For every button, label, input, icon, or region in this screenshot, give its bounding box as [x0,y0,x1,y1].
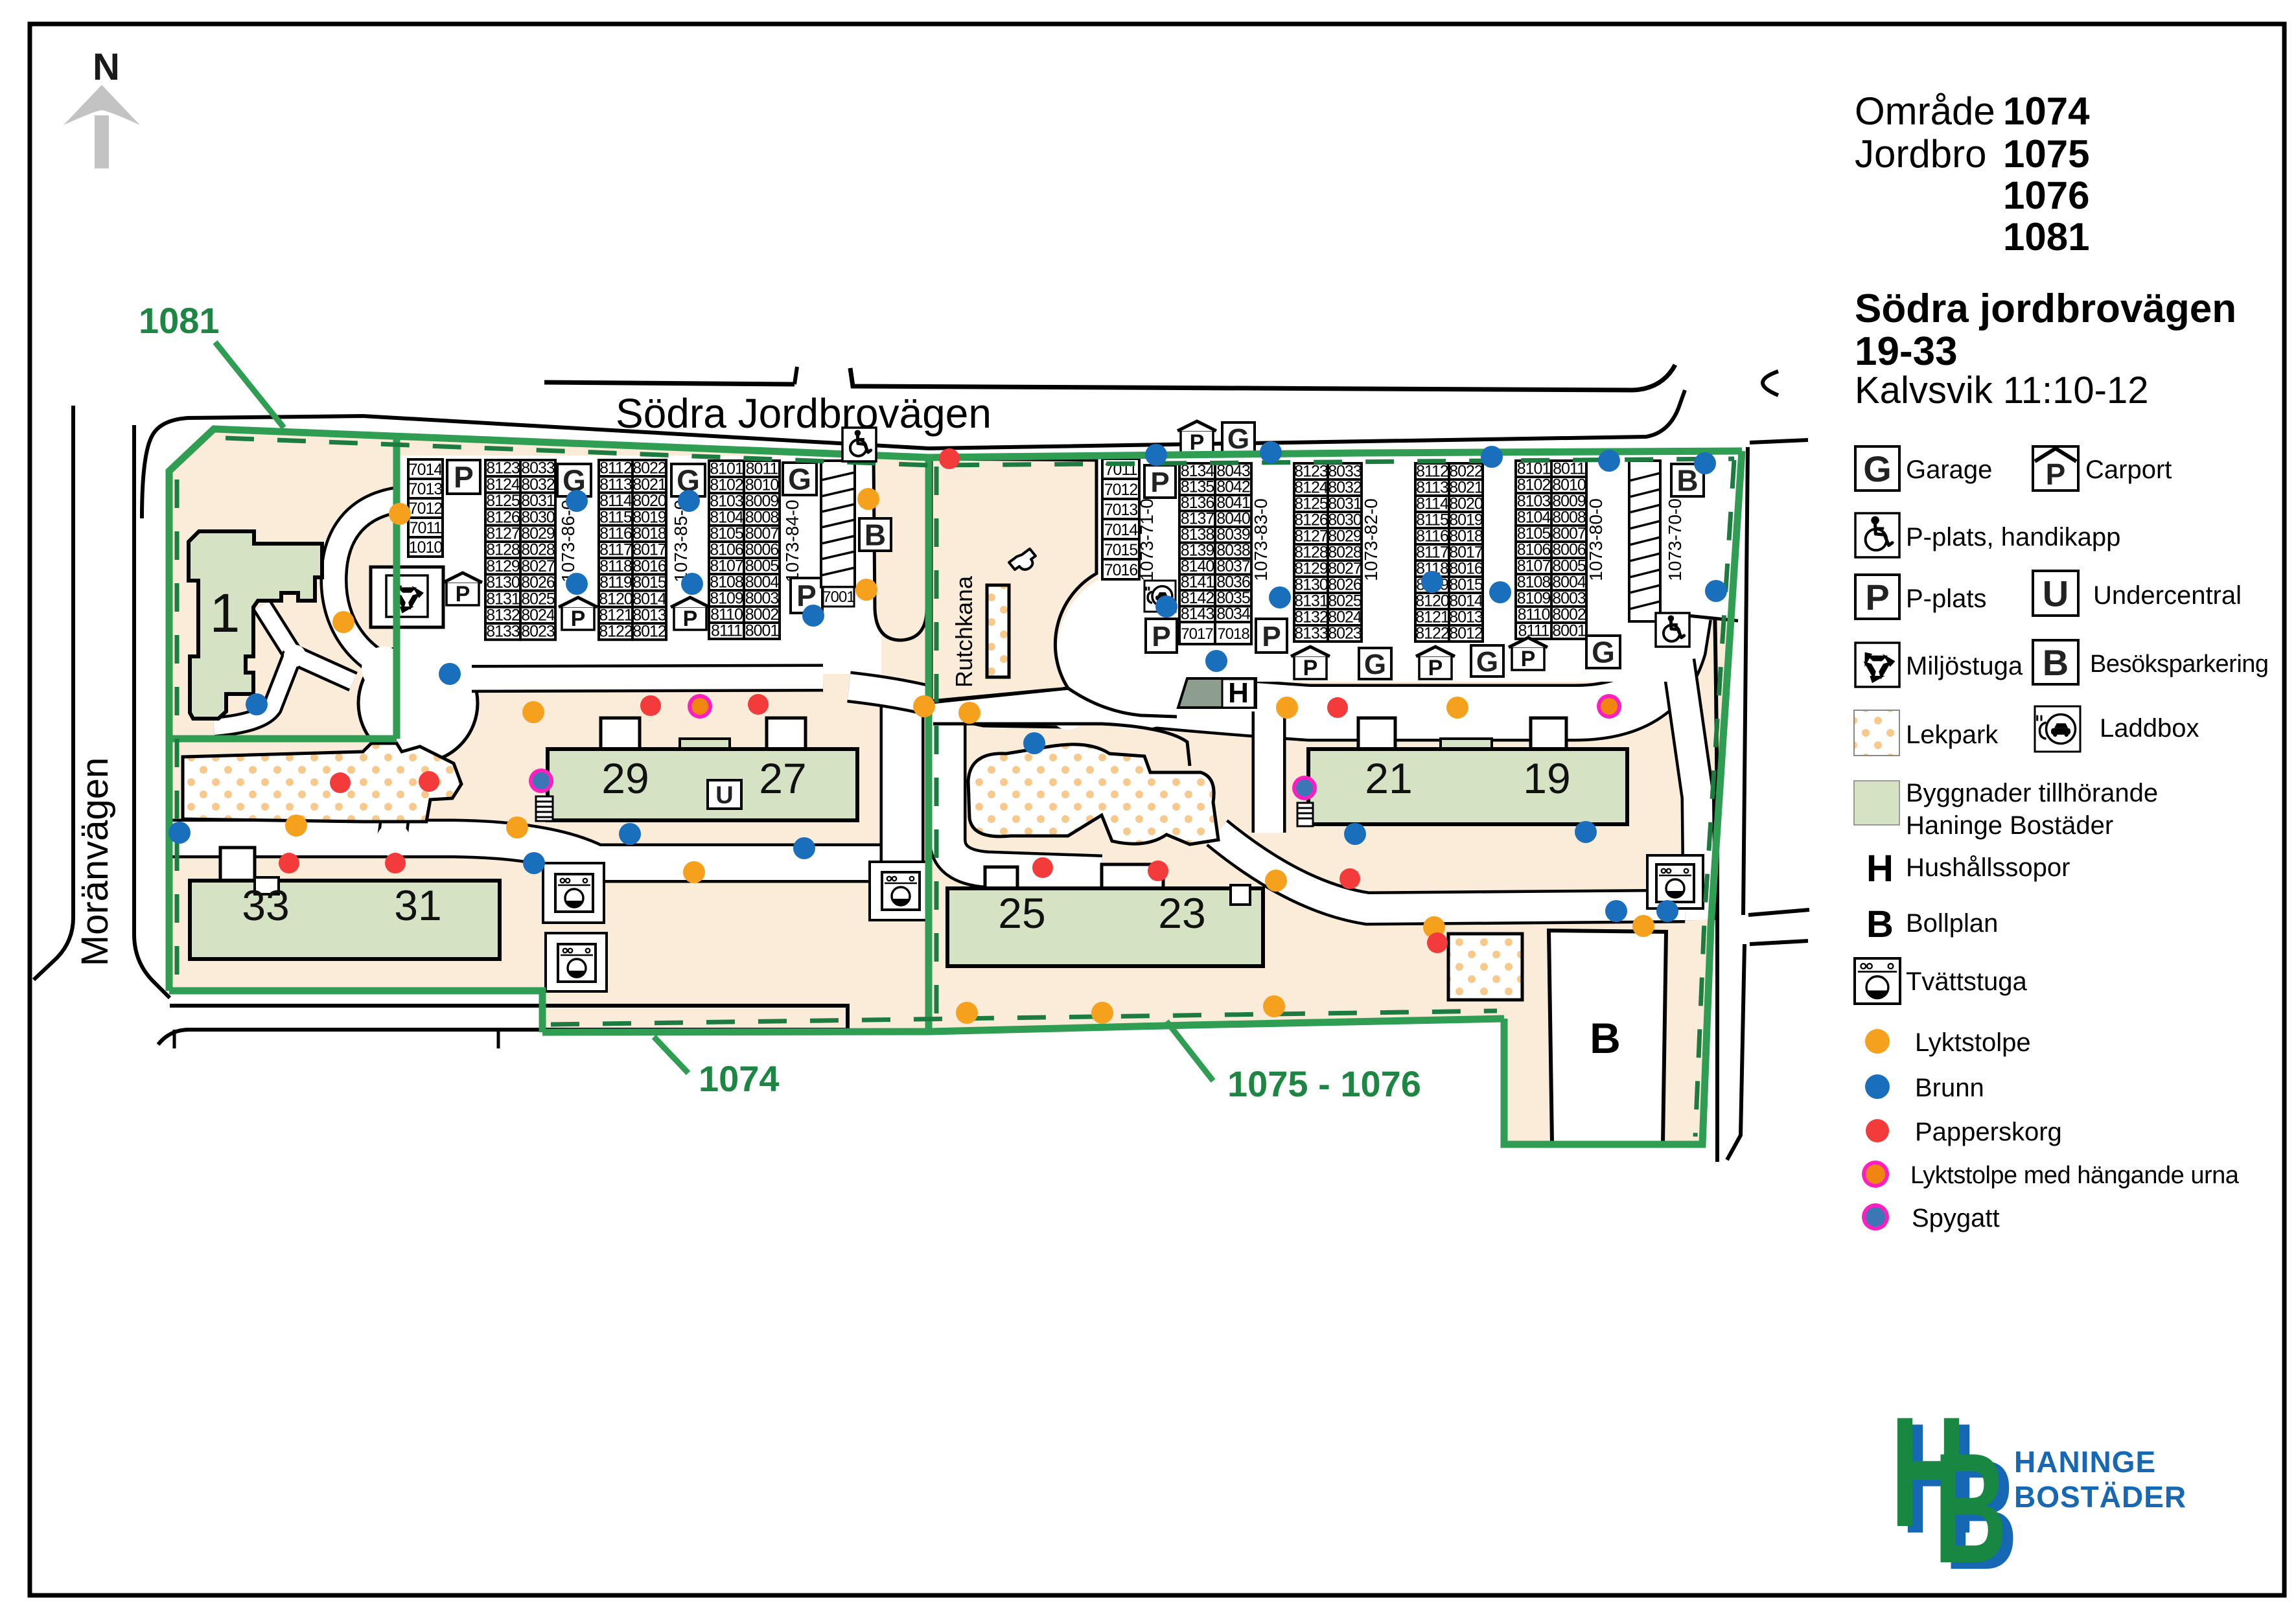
svg-text:B: B [1934,1421,2008,1596]
svg-text:Södra Jordbrovägen: Södra Jordbrovägen [616,390,991,437]
svg-text:8123: 8123 [486,459,520,478]
svg-text:29: 29 [601,754,649,802]
svg-text:8113: 8113 [599,476,632,494]
svg-text:U: U [715,782,733,809]
svg-text:8126: 8126 [1294,511,1328,529]
svg-text:1074: 1074 [699,1058,780,1099]
svg-text:8005: 8005 [1552,557,1586,575]
svg-text:8010: 8010 [1552,476,1586,494]
svg-text:8030: 8030 [1328,511,1362,529]
svg-text:8005: 8005 [745,557,779,575]
svg-text:8131: 8131 [1294,592,1328,610]
svg-text:8113: 8113 [1416,479,1448,497]
svg-text:1075: 1075 [2003,132,2089,176]
svg-text:8012: 8012 [632,623,666,641]
svg-text:8119: 8119 [599,573,632,592]
svg-text:8124: 8124 [486,476,520,494]
svg-text:8114: 8114 [1416,495,1449,513]
svg-text:8004: 8004 [1552,573,1586,592]
svg-text:8103: 8103 [1517,492,1551,511]
svg-text:BOSTÄDER: BOSTÄDER [2014,1480,2186,1514]
svg-text:19: 19 [1523,754,1570,802]
svg-text:7016: 7016 [1104,561,1138,579]
svg-text:U: U [2043,573,2069,614]
svg-text:8025: 8025 [1328,592,1362,610]
svg-text:8127: 8127 [1294,527,1328,546]
svg-text:8122: 8122 [1415,625,1449,643]
svg-text:21: 21 [1365,754,1412,802]
svg-text:7001: 7001 [822,588,855,606]
svg-text:Kalvsvik 11:10-12: Kalvsvik 11:10-12 [1855,369,2149,411]
svg-text:8127: 8127 [486,524,520,542]
svg-text:8104: 8104 [1517,509,1551,527]
svg-text:8106: 8106 [1517,541,1551,559]
svg-text:8006: 8006 [745,541,779,559]
svg-text:8026: 8026 [1328,576,1362,594]
svg-text:8033: 8033 [521,459,555,478]
svg-text:8006: 8006 [1552,541,1586,559]
svg-text:Miljöstuga: Miljöstuga [1906,652,2023,680]
svg-text:G: G [1227,423,1249,455]
svg-text:8102: 8102 [1517,476,1551,494]
svg-text:8033: 8033 [1328,463,1362,481]
svg-text:P: P [1428,656,1443,680]
svg-text:8110: 8110 [1518,606,1550,624]
svg-text:8021: 8021 [1449,479,1483,497]
svg-text:G: G [1476,646,1498,678]
svg-text:27: 27 [759,754,806,802]
svg-text:1076: 1076 [2003,174,2089,217]
svg-text:Hushållssopor: Hushållssopor [1906,853,2070,882]
svg-text:8102: 8102 [710,476,743,494]
svg-text:B: B [1676,464,1698,498]
svg-text:P: P [1150,467,1169,498]
svg-text:8104: 8104 [710,509,744,527]
svg-text:8032: 8032 [521,476,555,494]
svg-text:8117: 8117 [599,541,632,559]
svg-text:Jordbro: Jordbro [1855,132,1986,176]
svg-text:8132: 8132 [486,606,520,624]
svg-text:B: B [864,518,886,552]
svg-text:1010: 1010 [409,538,443,557]
svg-text:1: 1 [210,583,240,643]
svg-text:8121: 8121 [1415,608,1449,627]
svg-text:8026: 8026 [521,573,555,592]
svg-text:P: P [2046,457,2066,491]
svg-text:8118: 8118 [599,557,632,575]
svg-text:8020: 8020 [1449,495,1483,513]
svg-text:8024: 8024 [521,606,555,624]
svg-text:8130: 8130 [486,573,520,592]
svg-text:8131: 8131 [486,590,520,608]
svg-text:G: G [1863,448,1892,489]
svg-text:Lyktstolpe med hängande urna: Lyktstolpe med hängande urna [1910,1162,2240,1189]
svg-text:8107: 8107 [1517,557,1551,575]
svg-text:8109: 8109 [710,590,743,608]
svg-text:1073-86-0: 1073-86-0 [558,500,578,583]
svg-text:7014: 7014 [1104,521,1139,539]
svg-text:P-plats: P-plats [1906,584,1987,613]
svg-text:8032: 8032 [1328,479,1362,497]
svg-text:8027: 8027 [521,557,555,575]
svg-text:7013: 7013 [1104,501,1138,519]
svg-text:8121: 8121 [599,606,632,624]
svg-text:8108: 8108 [1517,573,1551,592]
svg-text:Spygatt: Spygatt [1912,1204,2000,1232]
svg-text:8003: 8003 [1552,590,1586,608]
svg-text:8103: 8103 [710,492,743,511]
svg-text:8009: 8009 [1552,492,1586,511]
svg-text:8107: 8107 [710,557,743,575]
svg-text:8101: 8101 [710,460,743,478]
svg-text:P: P [456,582,470,607]
svg-text:Rutchkana: Rutchkana [951,575,977,688]
svg-text:8112: 8112 [599,459,632,478]
svg-text:1074: 1074 [2003,89,2090,133]
svg-text:8128: 8128 [1294,544,1328,562]
svg-text:1073-70-0: 1073-70-0 [1665,498,1685,581]
svg-text:G: G [1592,636,1615,669]
svg-text:8133: 8133 [1294,625,1328,643]
svg-text:8011: 8011 [1553,460,1585,478]
svg-text:8024: 8024 [1328,608,1362,627]
svg-text:8007: 8007 [745,525,779,543]
svg-text:8002: 8002 [1552,606,1586,624]
svg-text:8013: 8013 [632,606,666,624]
svg-text:8111: 8111 [711,622,742,640]
svg-text:Carport: Carport [2085,456,2172,484]
svg-text:8023: 8023 [1328,625,1362,643]
svg-text:8116: 8116 [1416,527,1448,546]
svg-text:Garage: Garage [1906,456,1992,484]
svg-text:8014: 8014 [1449,592,1483,610]
svg-text:1081: 1081 [139,300,220,341]
svg-text:8009: 8009 [745,492,779,511]
svg-text:8002: 8002 [745,606,779,624]
svg-text:1073-71-0: 1073-71-0 [1137,498,1157,581]
svg-text:8133: 8133 [486,623,520,641]
svg-text:8129: 8129 [1294,560,1328,578]
svg-text:8013: 8013 [1449,608,1483,627]
svg-text:8018: 8018 [1449,527,1483,546]
svg-text:Lekpark: Lekpark [1906,721,1999,749]
svg-text:P: P [1303,656,1318,680]
svg-text:Tvättstuga: Tvättstuga [1906,967,2028,996]
svg-text:1073-85-0: 1073-85-0 [671,500,691,583]
svg-text:8129: 8129 [486,557,520,575]
svg-text:8008: 8008 [745,509,779,527]
svg-text:8125: 8125 [1294,495,1328,513]
svg-text:1073-80-0: 1073-80-0 [1586,498,1606,581]
svg-text:Lyktstolpe: Lyktstolpe [1915,1028,2031,1057]
svg-text:B: B [1866,903,1894,945]
svg-text:8016: 8016 [1449,560,1483,578]
svg-text:8028: 8028 [521,541,555,559]
svg-text:8020: 8020 [632,492,666,510]
svg-text:8115: 8115 [1416,511,1448,529]
svg-text:23: 23 [1158,889,1205,937]
svg-text:8027: 8027 [1328,560,1362,578]
svg-text:P: P [683,607,698,631]
svg-text:G: G [1364,649,1386,680]
svg-text:8128: 8128 [486,541,520,559]
svg-text:8126: 8126 [486,508,520,526]
svg-text:Undercentral: Undercentral [2093,581,2242,610]
svg-text:7017: 7017 [1181,625,1213,643]
svg-text:8004: 8004 [745,573,780,592]
svg-text:P: P [1865,577,1889,618]
svg-text:7012: 7012 [409,500,443,518]
svg-text:8132: 8132 [1294,608,1328,627]
svg-text:8116: 8116 [599,524,632,542]
svg-text:1075 - 1076: 1075 - 1076 [1227,1063,1421,1104]
svg-text:19-33: 19-33 [1855,329,1958,374]
svg-text:8143: 8143 [1181,605,1214,623]
svg-text:N: N [93,46,120,88]
svg-text:Laddbox: Laddbox [2100,714,2199,743]
svg-text:8015: 8015 [632,573,666,592]
svg-text:8011: 8011 [746,460,778,478]
svg-text:8029: 8029 [521,524,555,542]
svg-text:8110: 8110 [710,606,743,624]
svg-text:Bollplan: Bollplan [1906,909,1998,938]
svg-text:8014: 8014 [632,590,667,608]
svg-text:8117: 8117 [1416,544,1448,562]
svg-text:8030: 8030 [521,508,555,526]
svg-text:8120: 8120 [1415,592,1449,610]
svg-text:7012: 7012 [1104,481,1138,499]
svg-text:8016: 8016 [632,557,666,575]
svg-text:Papperskorg: Papperskorg [1915,1118,2062,1146]
svg-text:8114: 8114 [599,492,632,510]
svg-text:Brunn: Brunn [1915,1074,1984,1102]
svg-text:7018: 7018 [1217,625,1249,643]
svg-text:B: B [2043,642,2069,683]
svg-text:8123: 8123 [1294,463,1328,481]
svg-text:8025: 8025 [521,590,555,608]
svg-text:8028: 8028 [1328,544,1362,562]
svg-text:8105: 8105 [1517,525,1551,543]
svg-text:8122: 8122 [599,623,632,641]
svg-text:8018: 8018 [632,524,666,542]
svg-text:8023: 8023 [521,623,555,641]
svg-text:33: 33 [242,881,289,929]
svg-text:8031: 8031 [521,492,555,510]
svg-text:G: G [788,463,811,496]
svg-text:8003: 8003 [745,590,779,608]
svg-text:7015: 7015 [1104,541,1138,559]
svg-text:HANINGE: HANINGE [2014,1445,2156,1479]
svg-text:8124: 8124 [1294,479,1328,497]
svg-text:8034: 8034 [1216,605,1251,623]
svg-text:Södra jordbrovägen: Södra jordbrovägen [1855,286,2236,331]
svg-text:P: P [1262,621,1281,653]
svg-text:8106: 8106 [710,541,743,559]
svg-text:8017: 8017 [1449,544,1483,562]
svg-text:8008: 8008 [1552,509,1586,527]
svg-text:8022: 8022 [1449,463,1483,481]
svg-text:P: P [1521,647,1536,671]
svg-text:8111: 8111 [1518,622,1549,640]
svg-text:Haninge Bostäder: Haninge Bostäder [1906,811,2113,840]
svg-text:Besöksparkering: Besöksparkering [2090,651,2269,678]
svg-text:8112: 8112 [1416,463,1448,481]
svg-text:8017: 8017 [632,541,666,559]
svg-text:P: P [454,461,474,494]
svg-text:P: P [571,607,586,631]
svg-text:8012: 8012 [1449,625,1483,643]
svg-text:1073-82-0: 1073-82-0 [1361,498,1381,581]
svg-text:8021: 8021 [632,476,666,494]
svg-text:1073-83-0: 1073-83-0 [1251,498,1271,581]
svg-text:8007: 8007 [1552,525,1586,543]
svg-text:31: 31 [394,881,441,929]
svg-text:8022: 8022 [632,459,666,478]
svg-text:8108: 8108 [710,573,743,592]
svg-text:7011: 7011 [410,519,442,537]
svg-text:8029: 8029 [1328,527,1362,546]
svg-text:7014: 7014 [409,461,443,479]
svg-text:8010: 8010 [745,476,779,494]
svg-text:P-plats, handikapp: P-plats, handikapp [1906,523,2120,551]
svg-text:Moränvägen: Moränvägen [74,757,116,966]
svg-text:8031: 8031 [1328,495,1362,513]
svg-text:8109: 8109 [1517,590,1551,608]
svg-text:Område: Område [1855,89,1995,133]
svg-text:8130: 8130 [1294,576,1328,594]
svg-text:1073-84-0: 1073-84-0 [782,500,802,583]
svg-text:P: P [1152,621,1170,653]
svg-text:8019: 8019 [1449,511,1483,529]
svg-text:B: B [1590,1014,1621,1062]
svg-text:8001: 8001 [745,622,779,640]
svg-text:7013: 7013 [409,480,443,498]
svg-text:H: H [1866,848,1894,890]
svg-text:25: 25 [998,889,1045,937]
svg-text:8001: 8001 [1552,622,1586,640]
svg-text:8105: 8105 [710,525,743,543]
svg-text:8019: 8019 [632,508,666,526]
svg-text:8015: 8015 [1449,576,1483,594]
svg-text:1081: 1081 [2003,215,2089,259]
svg-text:8120: 8120 [599,590,632,608]
svg-text:Byggnader tillhörande: Byggnader tillhörande [1906,779,2158,807]
svg-text:H: H [1228,677,1249,709]
svg-text:8115: 8115 [599,508,632,526]
svg-text:8125: 8125 [486,492,520,510]
